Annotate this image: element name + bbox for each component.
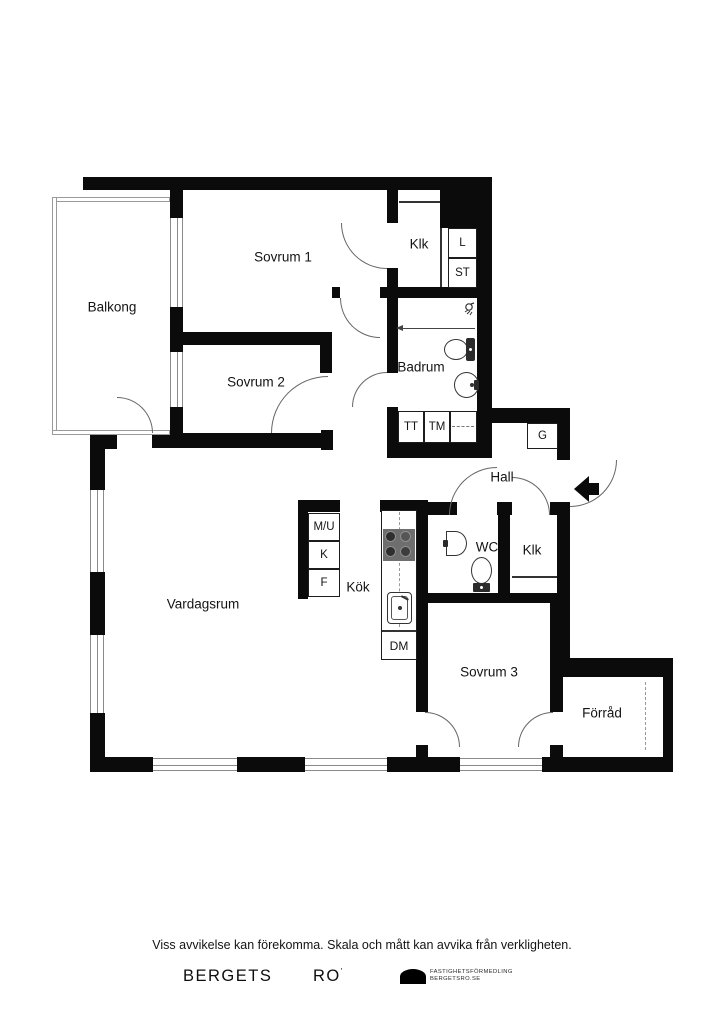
wall <box>83 177 492 190</box>
room-label-klk2: Klk <box>523 543 542 558</box>
room-label-sovrum1: Sovrum 1 <box>254 250 312 265</box>
sink-tap <box>474 380 479 390</box>
wall <box>387 443 492 458</box>
room-label-forrad: Förråd <box>582 706 622 721</box>
cell-st-label: ST <box>455 267 470 279</box>
burner <box>385 546 396 557</box>
room-label-kok: Kök <box>346 580 369 595</box>
window <box>90 490 104 572</box>
kitchen-sink-icon <box>387 592 412 624</box>
wall <box>170 407 183 435</box>
brand-logo-left: BERGETS <box>183 967 272 986</box>
room-label-sovrum2: Sovrum 2 <box>227 375 285 390</box>
wall <box>387 757 460 772</box>
door-arc-sovrum1 <box>340 298 380 338</box>
brand-left-text: BERGETS <box>183 967 272 985</box>
stove-icon <box>383 529 415 561</box>
cell-dm-label: DM <box>390 639 409 653</box>
cell-k-label: K <box>320 549 328 561</box>
door-arc-forrad <box>518 712 553 747</box>
wall <box>542 757 673 772</box>
room-label-wc: WC <box>476 540 499 555</box>
wall <box>380 287 492 298</box>
door-arc-badrum <box>352 372 387 407</box>
balcony-railing <box>52 197 57 435</box>
cell-l: L <box>448 228 477 258</box>
room-label-klk1: Klk <box>410 237 429 252</box>
agency-text: FASTIGHETSFÖRMEDLING BERGETSRO.SE <box>430 969 513 983</box>
wall <box>170 307 183 352</box>
wall <box>298 500 308 599</box>
wall <box>416 593 570 603</box>
wall <box>183 332 332 345</box>
window <box>460 758 542 771</box>
closet-rod-line <box>399 201 440 203</box>
wall <box>550 658 673 677</box>
cell-k: K <box>308 541 340 569</box>
cell-f: F <box>308 569 340 597</box>
wc-sink-icon <box>446 531 467 556</box>
window <box>305 758 387 771</box>
cell-mu-label: M/U <box>313 521 334 533</box>
wall <box>387 268 398 287</box>
wall <box>332 287 340 298</box>
agency-dome-icon <box>400 969 426 984</box>
door-arc-klk2 <box>512 477 550 515</box>
reserved-appliance-dashes <box>452 426 474 427</box>
wall <box>557 423 570 460</box>
cell-tm: TM <box>424 411 450 443</box>
wall <box>663 658 673 772</box>
floor-plan: L ST TT TM G M/U K F DM <box>0 0 724 1024</box>
agency-line1: FASTIGHETSFÖRMEDLING <box>430 969 513 976</box>
wall <box>416 500 428 712</box>
shower-icon <box>461 302 477 319</box>
burner <box>385 531 396 542</box>
window <box>170 218 183 307</box>
entrance-arrow-tail <box>589 483 599 495</box>
cell-st: ST <box>448 258 477 288</box>
ceiling-height-dash-line <box>645 682 646 750</box>
room-label-hall: Hall <box>490 470 513 485</box>
wall <box>477 190 492 458</box>
door-arc-balkong <box>117 397 153 433</box>
wc-toilet-icon <box>471 557 492 584</box>
window <box>90 635 104 713</box>
room-label-balkong: Balkong <box>88 300 137 315</box>
brand-logo-right: RO' <box>313 967 342 986</box>
wall <box>387 407 398 443</box>
wall <box>492 408 570 423</box>
room-label-badrum: Badrum <box>397 360 444 375</box>
wc-toilet-tank <box>473 583 490 592</box>
door-arc-sovrum3 <box>425 712 460 747</box>
window <box>170 352 183 407</box>
wc-sink-tap <box>443 540 448 547</box>
wall <box>498 515 510 593</box>
wall <box>320 332 332 373</box>
counter-divider-line <box>382 630 416 632</box>
wall <box>237 757 305 772</box>
entrance-arrow-icon <box>574 476 589 502</box>
shower-rail-arrow <box>396 325 403 331</box>
toilet-icon <box>444 339 468 360</box>
cell-tt: TT <box>398 411 424 443</box>
wall <box>170 190 183 218</box>
window <box>153 758 237 771</box>
cell-tm-label: TM <box>429 421 446 433</box>
cell-tt-label: TT <box>404 421 418 433</box>
agency-line2: BERGETSRO.SE <box>430 976 513 983</box>
cell-g: G <box>527 423 558 449</box>
closet-edge-line <box>440 228 442 287</box>
disclaimer-text: Viss avvikelse kan förekomma. Skala och … <box>152 938 571 952</box>
balcony-railing <box>52 197 170 202</box>
cell-mu: M/U <box>308 513 340 541</box>
wall <box>387 190 398 223</box>
room-label-sovrum3: Sovrum 3 <box>460 665 518 680</box>
room-label-vardagsrum: Vardagsrum <box>167 597 240 612</box>
brand-mark: ' <box>341 967 343 976</box>
cell-g-label: G <box>538 430 547 442</box>
wall <box>90 572 105 635</box>
toilet-tank <box>466 338 475 361</box>
burner <box>400 531 411 542</box>
wall <box>550 502 570 515</box>
cell-f-label: F <box>320 577 327 589</box>
burner <box>400 546 411 557</box>
wall <box>90 435 117 449</box>
closet-shelf-line <box>512 576 557 578</box>
brand-right-text: RO <box>313 967 341 985</box>
wall <box>497 502 512 515</box>
wall <box>387 298 398 373</box>
wall <box>90 757 153 772</box>
cell-l-label: L <box>459 237 465 249</box>
shower-rail-line <box>400 328 475 329</box>
door-arc-klk1 <box>341 223 387 269</box>
cell-reserved <box>450 411 477 443</box>
wall <box>152 433 332 448</box>
